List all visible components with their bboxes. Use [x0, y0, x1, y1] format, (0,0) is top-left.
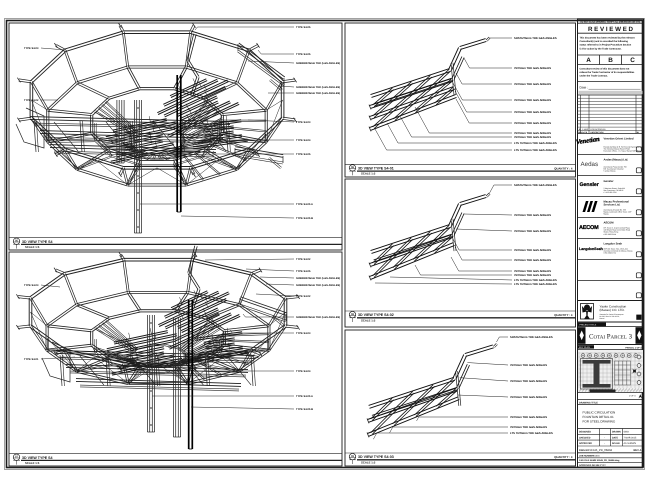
svg-text:TYPE S4-03: TYPE S4-03 — [296, 332, 311, 335]
svg-text:3D VIEW TYPE S4-03: 3D VIEW TYPE S4-03 — [358, 455, 394, 459]
svg-text:QUANTITY : 4: QUANTITY : 4 — [554, 455, 573, 459]
svg-text:76/76mm THK G&S ANGLES: 76/76mm THK G&S ANGLES — [514, 259, 551, 262]
svg-text:SMO: SMO — [624, 431, 629, 434]
svg-text:FOR STEEL DRAWING: FOR STEEL DRAWING — [583, 420, 616, 424]
svg-text:SHS/RHS76mm THK (L&S ANGLES): SHS/RHS76mm THK (L&S ANGLES) — [296, 92, 340, 95]
svg-text:TYPE S4-05 B: TYPE S4-05 B — [296, 408, 313, 411]
svg-text:t 1.415.433.3700: t 1.415.433.3700 — [604, 191, 617, 194]
svg-text:CAD FILE NAME 51545_PD_08494.: CAD FILE NAME 51545_PD_08494.dwg — [579, 459, 620, 462]
svg-text:Langdon Seah: Langdon Seah — [604, 243, 623, 246]
svg-text:JOB NUMBER: JOB NUMBER — [579, 454, 594, 457]
svg-text:SHS/RHS76mm THK (L&S ANGLES): SHS/RHS76mm THK (L&S ANGLES) — [296, 316, 340, 319]
svg-text:76/76mm THK G&S ANGLES: 76/76mm THK G&S ANGLES — [514, 111, 551, 114]
svg-text:C: C — [630, 57, 635, 64]
svg-text:76/76mm THK G&S ANGLES: 76/76mm THK G&S ANGLES — [514, 274, 551, 277]
svg-text:LTS 76/76mm THK G&S ANGLES: LTS 76/76mm THK G&S ANGLES — [514, 149, 557, 152]
svg-text:SHS/RHS76mm THK (L&S ANGLES): SHS/RHS76mm THK (L&S ANGLES) — [296, 277, 340, 280]
svg-text:SHS/RHS76mm THK (L&S ANGLES): SHS/RHS76mm THK (L&S ANGLES) — [296, 86, 340, 89]
svg-text:5.4 for action by the Trade Co: 5.4 for action by the Trade Contractor. — [580, 47, 622, 50]
svg-text:DATE: DATE — [612, 436, 619, 439]
svg-text:TYPE S4-03: TYPE S4-03 — [296, 121, 311, 124]
svg-text:PARCEL 1 OF 3: PARCEL 1 OF 3 — [625, 346, 642, 349]
svg-text:A: A — [586, 57, 591, 64]
svg-text:TYPE S4-05: TYPE S4-05 — [296, 153, 311, 156]
svg-text:Aedas (Macau) Ltd.: Aedas (Macau) Ltd. — [604, 159, 629, 162]
svg-text:76/76mm THK G&S ANGLES: 76/76mm THK G&S ANGLES — [514, 99, 551, 102]
svg-text:KEY PLAN: KEY PLAN — [579, 346, 590, 349]
svg-text:SHS76/76mm THK G&S ANGLES: SHS76/76mm THK G&S ANGLES — [510, 336, 553, 339]
svg-text:TYPE S4-04: TYPE S4-04 — [296, 370, 311, 373]
svg-text:PUBLIC CIRCULATION: PUBLIC CIRCULATION — [583, 411, 616, 415]
svg-text:76/76mm THK G&S ANGLES: 76/76mm THK G&S ANGLES — [514, 132, 551, 135]
svg-text:REV A: REV A — [634, 449, 642, 452]
svg-text:SCALE 1:5: SCALE 1:5 — [361, 460, 376, 464]
svg-text:76/76mm THK G&S ANGLES: 76/76mm THK G&S ANGLES — [514, 270, 551, 273]
svg-text:3D VIEW TYPE S4-02: 3D VIEW TYPE S4-02 — [358, 313, 394, 317]
svg-text:LangdonSeah: LangdonSeah — [579, 247, 603, 251]
svg-text:SCALE: SCALE — [612, 442, 620, 445]
svg-text:Gensler: Gensler — [580, 182, 599, 188]
svg-text:51545: 51545 — [594, 454, 601, 457]
svg-text:TYPE S4-02: TYPE S4-02 — [24, 99, 39, 102]
svg-text:DRAWN: DRAWN — [612, 431, 621, 434]
svg-text:TYPE S4-05 A: TYPE S4-05 A — [296, 395, 313, 398]
svg-text:SCALE 1:5: SCALE 1:5 — [25, 461, 40, 465]
svg-text:DWG NO: DWG NO — [579, 449, 589, 452]
svg-text:AECOM: AECOM — [604, 222, 615, 225]
svg-text:TYPE S4-05 A: TYPE S4-05 A — [296, 203, 313, 206]
svg-text:DRAWING TITLE: DRAWING TITLE — [579, 401, 598, 404]
svg-text:3D VIEW TYPE S4: 3D VIEW TYPE S4 — [22, 456, 53, 460]
svg-text:COTAI PARCEL 3: COTAI PARCEL 3 — [589, 333, 633, 340]
svg-text:SCALE 1:5: SCALE 1:5 — [361, 172, 376, 176]
svg-text:Gensler: Gensler — [604, 180, 614, 183]
svg-text:B: B — [608, 57, 613, 64]
svg-text:76/76mm THK G&S ANGLES: 76/76mm THK G&S ANGLES — [510, 364, 547, 367]
svg-text:SCALE 1:5: SCALE 1:5 — [25, 245, 40, 249]
svg-text:Aedas: Aedas — [581, 161, 599, 168]
svg-text:Date :: Date : — [580, 86, 589, 90]
svg-text:LTS 76/76mm THK G&S ANGLES: LTS 76/76mm THK G&S ANGLES — [514, 283, 557, 286]
svg-text:Consultant(s) and is accord: Consultant(s) and is accorded the follow… — [580, 40, 629, 43]
svg-text:76/76mm THK G&S ANGLES: 76/76mm THK G&S ANGLES — [514, 136, 551, 139]
svg-text:t 853.2833.1710: t 853.2833.1710 — [604, 252, 617, 255]
svg-text:SHS/RHS76mm THK (L&S ANGLES): SHS/RHS76mm THK (L&S ANGLES) — [296, 284, 340, 287]
svg-text:TYPE S4-05: TYPE S4-05 — [296, 270, 311, 273]
svg-text:AECOM: AECOM — [579, 225, 599, 231]
svg-text:76/76mm THK G&S ANGLES: 76/76mm THK G&S ANGLES — [510, 426, 547, 429]
svg-text:status referred to in Proj: status referred to in Project Procedure … — [580, 44, 632, 47]
svg-text:DESIGNED: DESIGNED — [579, 431, 591, 434]
svg-text:TYPE S4-02: TYPE S4-02 — [296, 295, 311, 298]
svg-text:Consultant review of this: Consultant review of this document does … — [580, 68, 630, 71]
svg-text:76/76mm THK G&S ANGLES: 76/76mm THK G&S ANGLES — [510, 416, 547, 419]
svg-text:76/76mm THK G&S ANGLES: 76/76mm THK G&S ANGLES — [510, 380, 547, 383]
svg-text:76/76mm THK G&S ANGLES: 76/76mm THK G&S ANGLES — [514, 214, 551, 217]
svg-text:Macau: Macau — [604, 213, 609, 216]
svg-text:QUANTITY : 4: QUANTITY : 4 — [554, 167, 573, 171]
svg-text:SCALE 1:5: SCALE 1:5 — [361, 318, 376, 322]
svg-text:t 852.3922.9000: t 852.3922.9000 — [604, 233, 617, 236]
svg-text:76/76mm THK G&S ANGLES: 76/76mm THK G&S ANGLES — [514, 83, 551, 86]
svg-text:SHS76/76mm THK G&S ANGLES: SHS76/76mm THK G&S ANGLES — [514, 184, 557, 187]
svg-text:TYPE S4-02: TYPE S4-02 — [296, 258, 311, 261]
svg-text:3D VIEW TYPE S4-01: 3D VIEW TYPE S4-01 — [358, 167, 394, 171]
svg-text:5 andar, Macau: 5 andar, Macau — [604, 170, 616, 173]
svg-text:76/76mm THK G&S ANGLES: 76/76mm THK G&S ANGLES — [510, 396, 547, 399]
svg-text:7 MAR 2015: 7 MAR 2015 — [624, 436, 637, 439]
svg-text:AS SHOWN: AS SHOWN — [624, 442, 637, 445]
svg-text:TYPE S4-01: TYPE S4-01 — [24, 358, 39, 361]
svg-text:under the Trade Contract.: under the Trade Contract. — [580, 75, 609, 78]
svg-text:LTS 76/76mm THK G&S ANGLES: LTS 76/76mm THK G&S ANGLES — [514, 142, 557, 145]
svg-text:APPROVED: APPROVED — [579, 442, 592, 445]
svg-text:3D VIEW TYPE S4: 3D VIEW TYPE S4 — [22, 240, 53, 244]
svg-text:TYPE S4-05 B: TYPE S4-05 B — [296, 217, 313, 220]
svg-text:PROJECT TITLE: PROJECT TITLE — [580, 324, 597, 327]
svg-text:R E V I E W E D: R E V I E W E D — [588, 26, 634, 33]
svg-text:FOUNTAIN DETAIL 01: FOUNTAIN DETAIL 01 — [583, 415, 615, 419]
svg-text:FOR APPROVAL: FOR APPROVAL — [591, 128, 607, 131]
svg-text:LTS 76/76mm THK G&S ANGLES: LTS 76/76mm THK G&S ANGLES — [514, 279, 557, 282]
svg-text:LTS 76/76mm THK G&S ANGLES: LTS 76/76mm THK G&S ANGLES — [510, 432, 553, 435]
svg-text:relieve the Trade Contracto: relieve the Trade Contractor of its resp… — [580, 71, 636, 74]
svg-text:TYPE S4-04: TYPE S4-04 — [296, 139, 311, 142]
svg-text:CHECKED: CHECKED — [579, 436, 591, 439]
svg-text:76/76mm THK G&S ANGLES: 76/76mm THK G&S ANGLES — [514, 249, 551, 252]
svg-text:APPROVED DD MM YYYY: APPROVED DD MM YYYY — [579, 464, 606, 467]
svg-text:TYPE S4-03: TYPE S4-03 — [24, 284, 39, 287]
svg-text:1 MAR: 1 MAR — [582, 128, 589, 131]
svg-text:SHS/RHS76mm THK (L&S ANGLES): SHS/RHS76mm THK (L&S ANGLES) — [296, 62, 340, 65]
svg-text:This document has been reviewe: This document has been reviewed by the r… — [580, 37, 635, 40]
svg-text:TYPE S4-03: TYPE S4-03 — [24, 47, 39, 50]
svg-text:SHS76/76mm THK G&S ANGLES: SHS76/76mm THK G&S ANGLES — [514, 37, 557, 40]
svg-text:(Macau) CO. LTD.: (Macau) CO. LTD. — [600, 308, 625, 312]
svg-text:76/76mm THK G&S ANGLES: 76/76mm THK G&S ANGLES — [514, 67, 551, 70]
svg-text:QUANTITY : 4: QUANTITY : 4 — [554, 313, 573, 317]
svg-text:Venetian Orient Limited: Venetian Orient Limited — [604, 138, 634, 141]
svg-text:Services Ltd.: Services Ltd. — [604, 204, 621, 207]
svg-text:TYPE S4-05: TYPE S4-05 — [296, 53, 311, 56]
svg-text:51545_PD_08494: 51545_PD_08494 — [590, 448, 613, 452]
svg-text:TYPE S4-05: TYPE S4-05 — [296, 26, 311, 29]
svg-text:76/76mm THK G&S ANGLES: 76/76mm THK G&S ANGLES — [514, 230, 551, 233]
svg-text:76/76mm THK G&S ANGLES: 76/76mm THK G&S ANGLES — [514, 122, 551, 125]
svg-text:1 OF 3: 1 OF 3 — [629, 395, 636, 398]
